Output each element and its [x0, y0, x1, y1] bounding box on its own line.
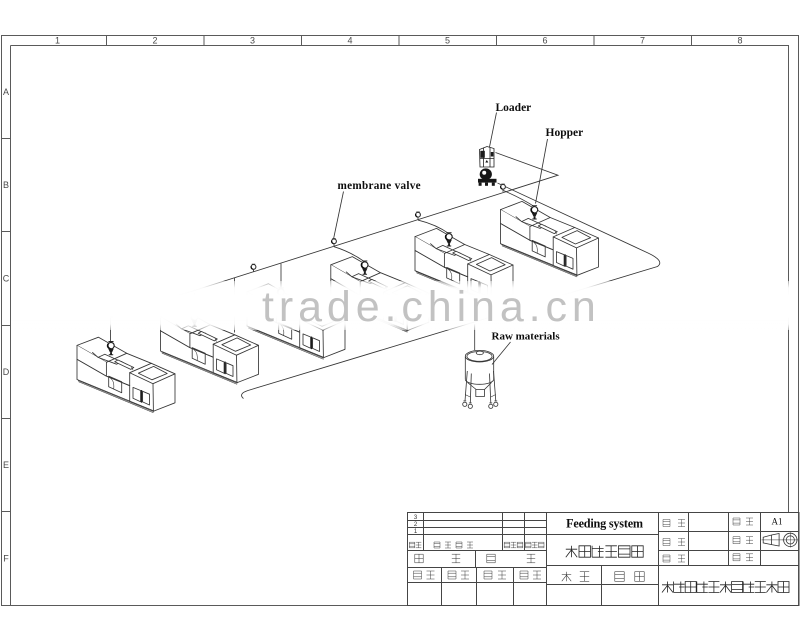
svg-text:Feeding system: Feeding system: [566, 517, 643, 531]
svg-text:4: 4: [347, 36, 352, 46]
svg-text:F: F: [3, 554, 9, 564]
svg-text:7: 7: [640, 36, 645, 46]
svg-text:3: 3: [250, 36, 255, 46]
svg-text:Hopper: Hopper: [546, 127, 584, 139]
svg-text:Loader: Loader: [496, 102, 532, 114]
svg-text:E: E: [3, 460, 9, 470]
svg-text:A: A: [3, 87, 9, 97]
svg-text:C: C: [3, 274, 10, 284]
svg-text:D: D: [3, 367, 10, 377]
svg-text:5: 5: [445, 36, 450, 46]
svg-text:membrane valve: membrane valve: [338, 180, 421, 192]
svg-text:A1: A1: [772, 517, 783, 527]
svg-text:2: 2: [152, 36, 157, 46]
svg-text:B: B: [3, 180, 9, 190]
svg-text:1: 1: [55, 36, 60, 46]
svg-text:trade.china.cn: trade.china.cn: [262, 283, 601, 331]
svg-text:8: 8: [737, 36, 742, 46]
svg-text:6: 6: [542, 36, 547, 46]
svg-text:Raw materials: Raw materials: [492, 331, 561, 343]
